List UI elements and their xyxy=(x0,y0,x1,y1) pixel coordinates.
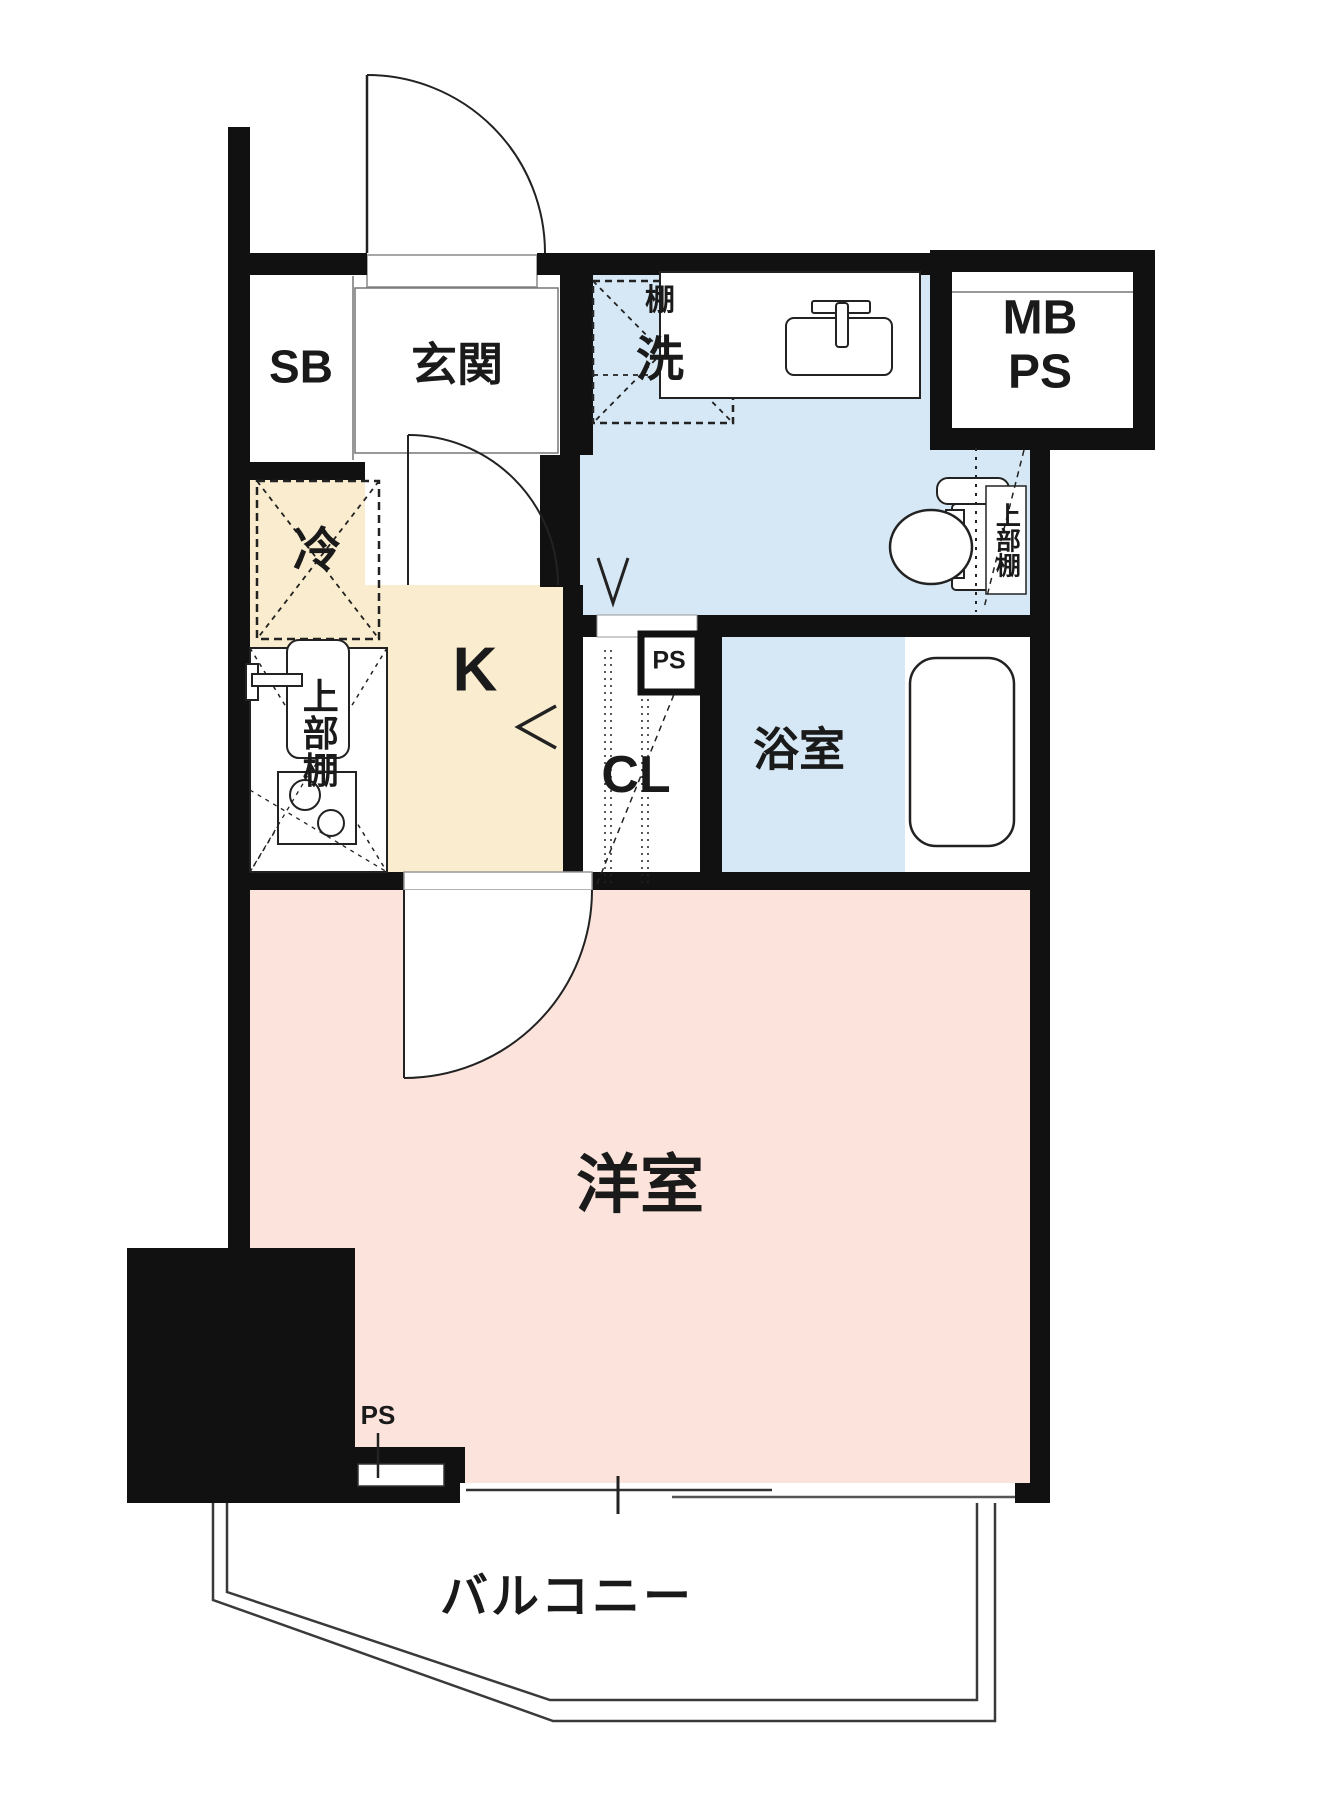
kitchen-faucet-bar xyxy=(252,674,302,686)
kitchen-label: K xyxy=(453,634,498,705)
pipe-space-lower-label: PS xyxy=(361,1401,396,1431)
balcony-label: バルコニー xyxy=(440,1569,694,1624)
wall-right xyxy=(1030,450,1050,1503)
entrance-label: 玄関 xyxy=(411,339,503,392)
bathtub-icon xyxy=(910,658,1014,846)
wall-kitchen-room-right xyxy=(592,872,1030,890)
window-opening xyxy=(460,1483,1015,1503)
laundry-shelf-label: 棚 xyxy=(645,284,675,319)
refrigerator-label: 冷 xyxy=(293,523,341,578)
room-door-opening xyxy=(404,872,592,890)
washbasin-icon xyxy=(660,272,920,398)
ps-lower-slot xyxy=(358,1464,444,1486)
wall-entrance-kitchen xyxy=(245,462,365,480)
kitchen-upper-shelf-label: 上部棚 xyxy=(297,678,338,789)
bathroom-label: 浴室 xyxy=(753,724,845,777)
wall-entrance-washroom xyxy=(560,275,593,455)
washbasin-faucet xyxy=(836,303,848,347)
entrance-door-swing xyxy=(367,75,545,253)
western-room-label: 洋室 xyxy=(576,1149,704,1223)
wall-hall-right xyxy=(540,455,580,587)
wall-washroom-bath-left xyxy=(583,615,597,637)
wall-closet-bath xyxy=(700,637,722,890)
shoe-box-label: SB xyxy=(269,341,333,394)
mbps-label-line1: MB xyxy=(1003,290,1078,345)
floor-plan: SB 玄関 棚 洗 MB PS 冷 K 上部棚 CL PS 浴室 上部棚 洋室 … xyxy=(0,0,1320,1800)
floor-plan-drawing xyxy=(0,0,1320,1800)
mbps-label-line2: PS xyxy=(1008,344,1072,399)
structural-pillar xyxy=(127,1248,355,1503)
wall-kitchen-room-left xyxy=(250,872,404,890)
entrance-sill xyxy=(367,255,537,287)
wall-top-left xyxy=(250,253,367,275)
pipe-space-upper-label: PS xyxy=(652,647,685,676)
toilet-upper-shelf-label: 上部棚 xyxy=(992,503,1021,578)
wall-washroom-bath-right xyxy=(697,615,1030,637)
wall-closet-left xyxy=(563,585,583,890)
hallway-floor xyxy=(365,437,565,585)
toilet-bowl xyxy=(890,510,972,584)
laundry-washer-label: 洗 xyxy=(636,332,684,387)
entrance-door-arc xyxy=(367,75,545,253)
closet-label: CL xyxy=(601,746,670,806)
